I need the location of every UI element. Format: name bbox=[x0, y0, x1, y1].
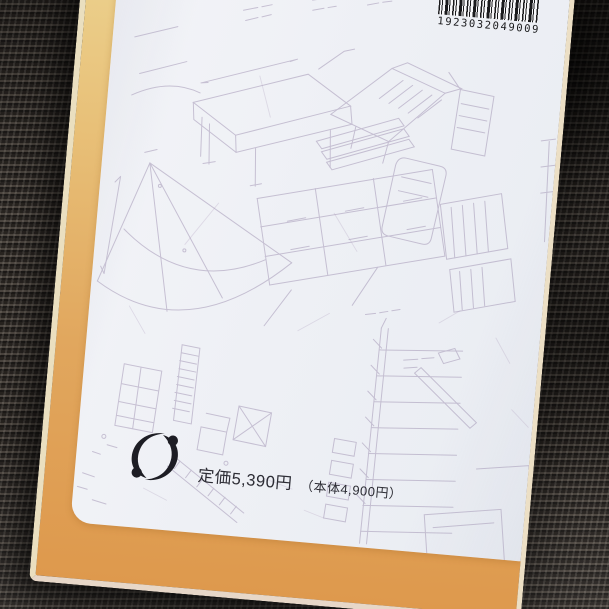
price-main-text: 定価5,390円 bbox=[197, 467, 293, 493]
book-back-cover: 1923032049009 定価5,390円 （本体4,900円） bbox=[29, 0, 575, 609]
cover-inner-panel: 1923032049009 定価5,390円 （本体4,900円） bbox=[70, 0, 575, 563]
photo-scene: 1923032049009 定価5,390円 （本体4,900円） bbox=[0, 0, 609, 609]
price-sub-text: （本体4,900円） bbox=[300, 478, 403, 502]
publisher-logo-icon bbox=[124, 426, 186, 488]
